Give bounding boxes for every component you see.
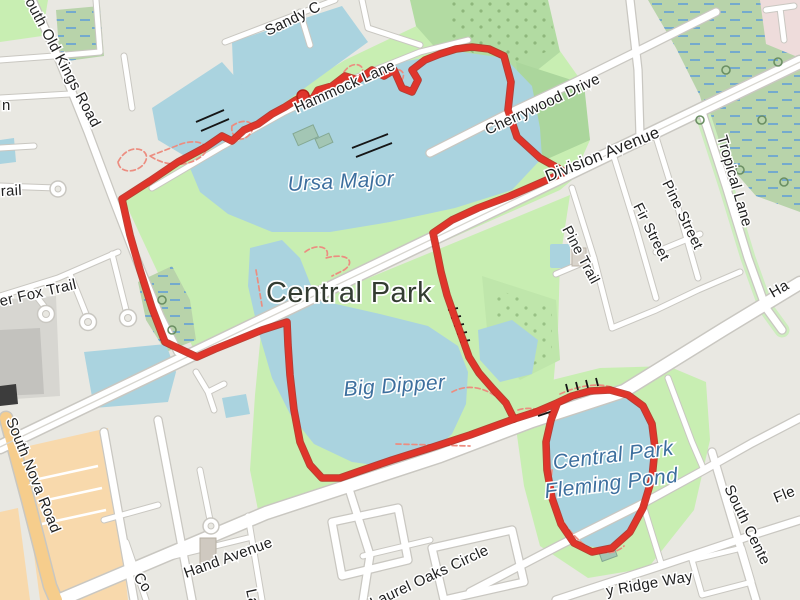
map-svg: South Old Kings Road Sandy C Hammock Lan… bbox=[0, 0, 800, 600]
street-label-trail-partial: rail bbox=[0, 182, 22, 200]
street-label-n-partial: n bbox=[2, 97, 11, 114]
street-label-la-partial: La bbox=[242, 587, 262, 600]
park-label-central-park: Central Park bbox=[266, 277, 432, 309]
map-canvas[interactable]: South Old Kings Road Sandy C Hammock Lan… bbox=[0, 0, 800, 600]
